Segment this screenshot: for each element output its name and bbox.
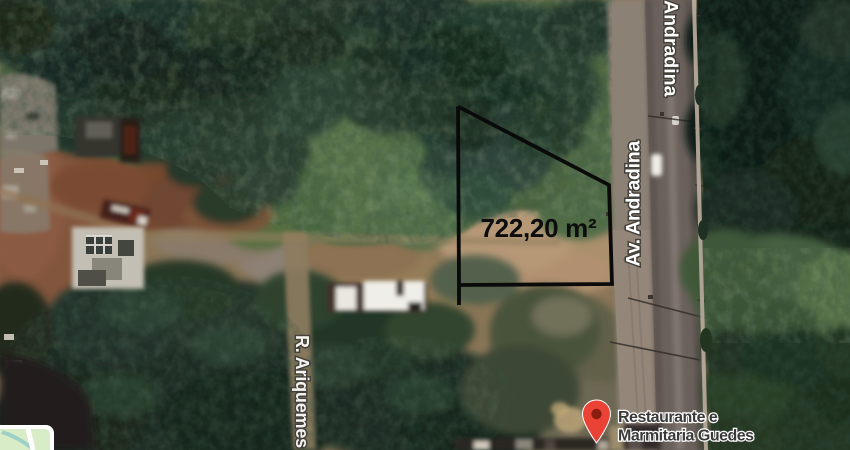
svg-text:722,20 m²: 722,20 m²: [481, 213, 597, 243]
svg-text:R. Ariquemes: R. Ariquemes: [292, 335, 312, 448]
svg-text:Andradina: Andradina: [660, 0, 682, 97]
svg-text:Marmitaria Guedes: Marmitaria Guedes: [618, 428, 754, 445]
svg-text:Restaurante e: Restaurante e: [618, 409, 718, 426]
svg-text:Av. Andradina: Av. Andradina: [623, 141, 645, 267]
